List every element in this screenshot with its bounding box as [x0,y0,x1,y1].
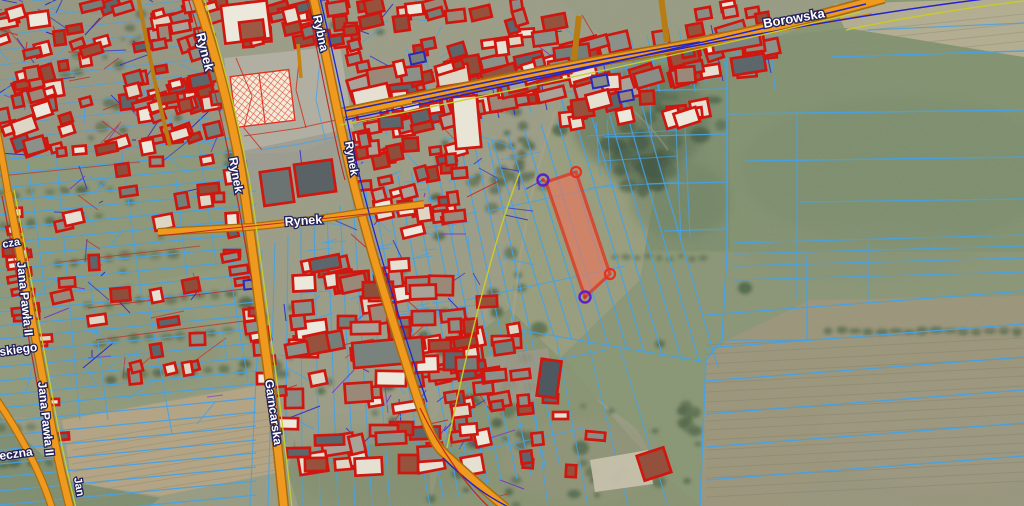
svg-text:Rynek: Rynek [284,212,322,229]
